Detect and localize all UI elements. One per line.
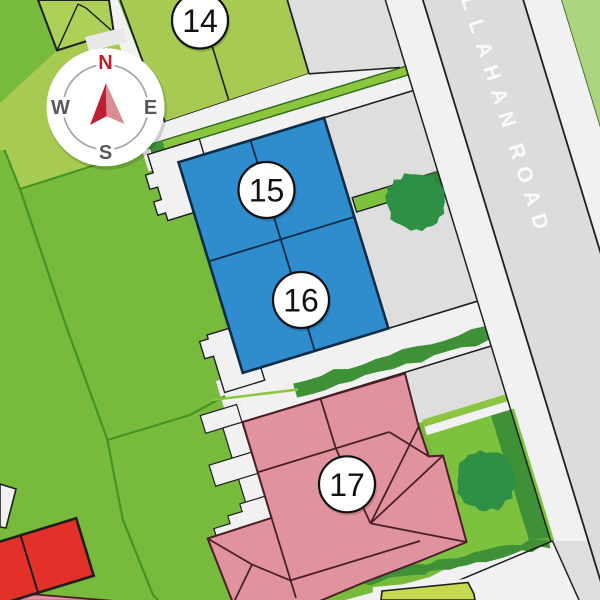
svg-text:N: N (98, 52, 112, 74)
svg-text:17: 17 (329, 467, 365, 503)
svg-text:W: W (51, 97, 70, 119)
svg-text:15: 15 (249, 173, 285, 209)
svg-text:14: 14 (182, 3, 218, 39)
svg-text:S: S (99, 142, 112, 164)
svg-text:16: 16 (283, 283, 319, 319)
svg-text:E: E (144, 97, 157, 119)
